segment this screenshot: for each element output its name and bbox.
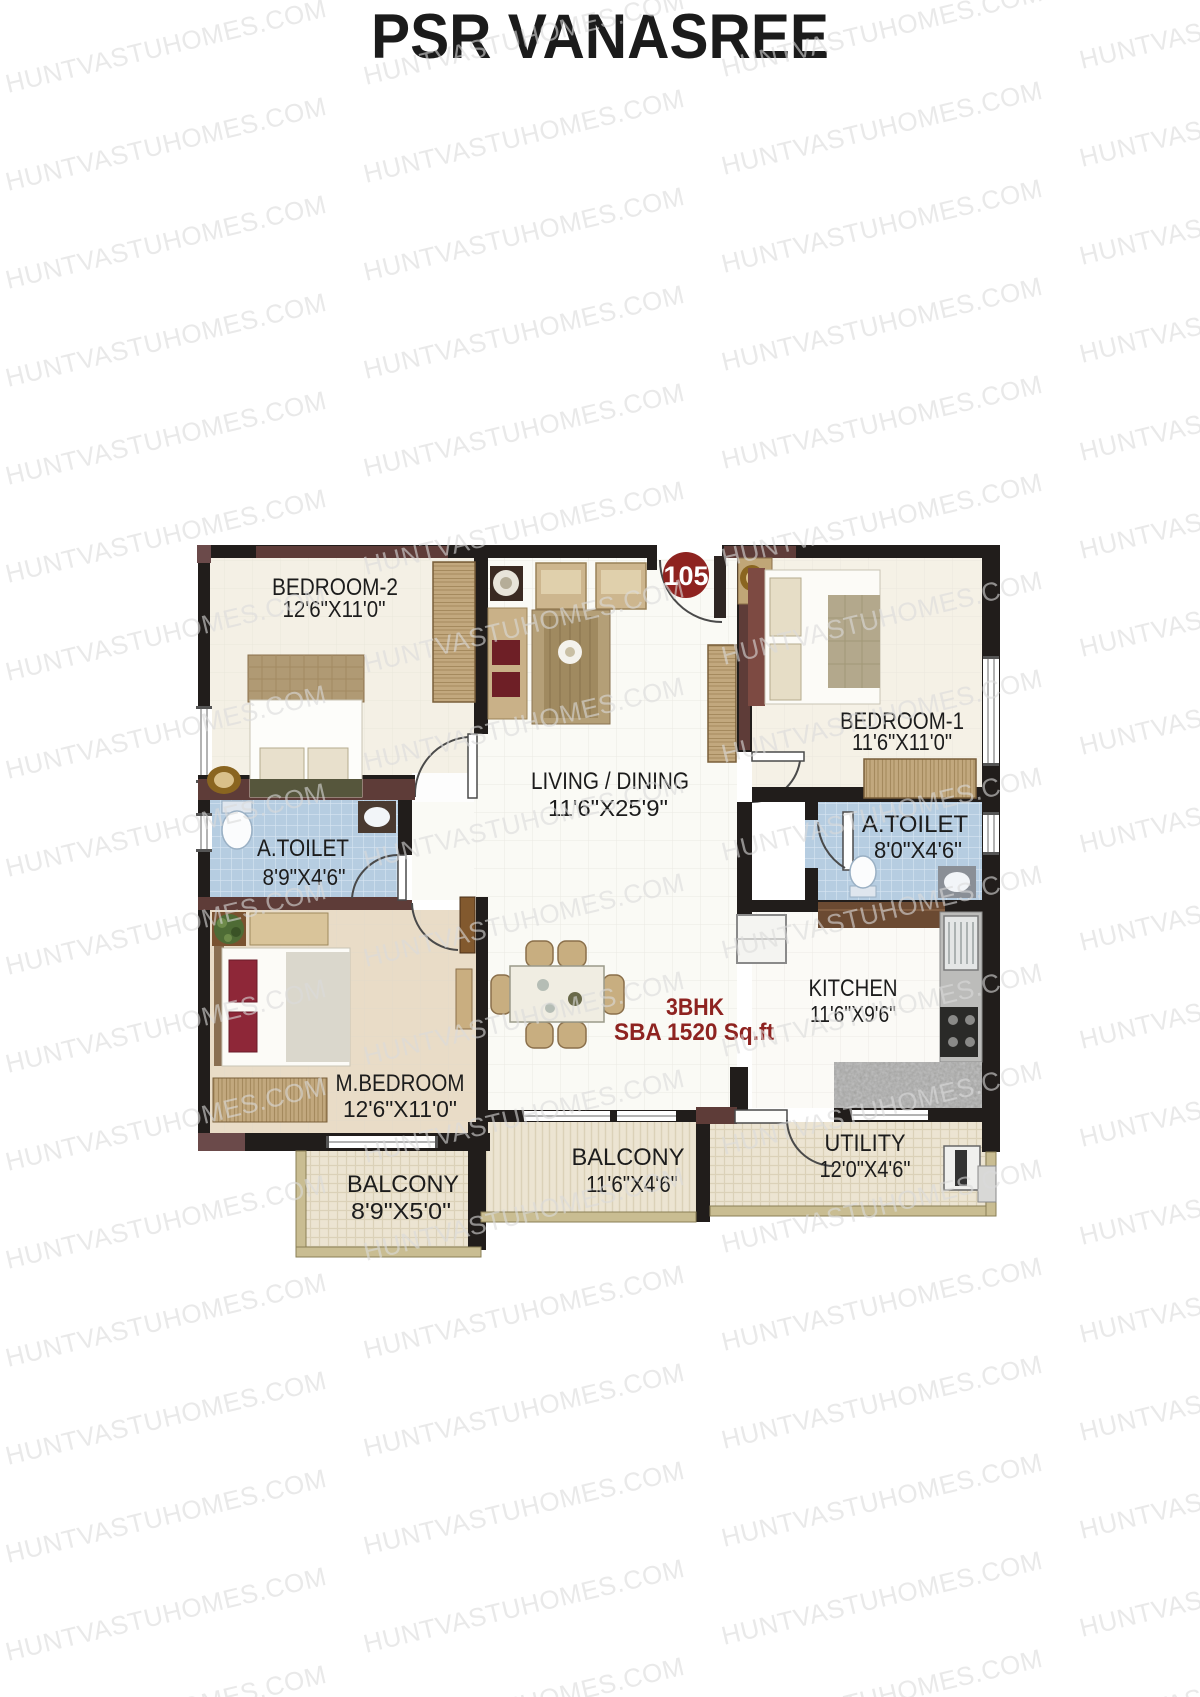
- svg-text:HUNTVASTUHOMES.COM: HUNTVASTUHOMES.COM: [1076, 0, 1200, 75]
- svg-text:HUNTVASTUHOMES.COM: HUNTVASTUHOMES.COM: [2, 287, 329, 393]
- svg-text:HUNTVASTUHOMES.COM: HUNTVASTUHOMES.COM: [2, 385, 329, 491]
- svg-text:HUNTVASTUHOMES.COM: HUNTVASTUHOMES.COM: [2, 1659, 329, 1697]
- svg-text:HUNTVASTUHOMES.COM: HUNTVASTUHOMES.COM: [1076, 1439, 1200, 1545]
- svg-text:HUNTVASTUHOMES.COM: HUNTVASTUHOMES.COM: [718, 1349, 1045, 1455]
- svg-text:HUNTVASTUHOMES.COM: HUNTVASTUHOMES.COM: [360, 1259, 687, 1365]
- svg-text:A.TOILET: A.TOILET: [257, 835, 349, 862]
- svg-text:HUNTVASTUHOMES.COM: HUNTVASTUHOMES.COM: [2, 91, 329, 197]
- svg-text:HUNTVASTUHOMES.COM: HUNTVASTUHOMES.COM: [1076, 1341, 1200, 1447]
- svg-text:HUNTVASTUHOMES.COM: HUNTVASTUHOMES.COM: [360, 1553, 687, 1659]
- svg-text:HUNTVASTUHOMES.COM: HUNTVASTUHOMES.COM: [718, 271, 1045, 377]
- svg-text:HUNTVASTUHOMES.COM: HUNTVASTUHOMES.COM: [718, 1545, 1045, 1651]
- svg-text:HUNTVASTUHOMES.COM: HUNTVASTUHOMES.COM: [2, 0, 329, 99]
- svg-text:HUNTVASTUHOMES.COM: HUNTVASTUHOMES.COM: [2, 1463, 329, 1569]
- svg-text:HUNTVASTUHOMES.COM: HUNTVASTUHOMES.COM: [1076, 753, 1200, 859]
- svg-text:8'0"X4'6": 8'0"X4'6": [874, 837, 962, 863]
- svg-text:HUNTVASTUHOMES.COM: HUNTVASTUHOMES.COM: [2, 1561, 329, 1667]
- svg-text:HUNTVASTUHOMES.COM: HUNTVASTUHOMES.COM: [718, 173, 1045, 279]
- svg-text:HUNTVASTUHOMES.COM: HUNTVASTUHOMES.COM: [360, 279, 687, 385]
- svg-text:HUNTVASTUHOMES.COM: HUNTVASTUHOMES.COM: [1076, 1635, 1200, 1697]
- svg-text:HUNTVASTUHOMES.COM: HUNTVASTUHOMES.COM: [1076, 67, 1200, 173]
- svg-text:HUNTVASTUHOMES.COM: HUNTVASTUHOMES.COM: [1076, 1145, 1200, 1251]
- svg-text:12'0"X4'6": 12'0"X4'6": [820, 1156, 911, 1182]
- svg-text:3BHK: 3BHK: [666, 994, 725, 1021]
- svg-text:HUNTVASTUHOMES.COM: HUNTVASTUHOMES.COM: [360, 1651, 687, 1697]
- svg-text:HUNTVASTUHOMES.COM: HUNTVASTUHOMES.COM: [2, 1169, 329, 1275]
- svg-text:HUNTVASTUHOMES.COM: HUNTVASTUHOMES.COM: [718, 1643, 1045, 1697]
- svg-text:HUNTVASTUHOMES.COM: HUNTVASTUHOMES.COM: [1076, 1047, 1200, 1153]
- svg-text:HUNTVASTUHOMES.COM: HUNTVASTUHOMES.COM: [718, 369, 1045, 475]
- svg-text:HUNTVASTUHOMES.COM: HUNTVASTUHOMES.COM: [718, 75, 1045, 181]
- svg-text:HUNTVASTUHOMES.COM: HUNTVASTUHOMES.COM: [1076, 361, 1200, 467]
- svg-text:HUNTVASTUHOMES.COM: HUNTVASTUHOMES.COM: [1076, 655, 1200, 761]
- svg-text:HUNTVASTUHOMES.COM: HUNTVASTUHOMES.COM: [360, 1455, 687, 1561]
- svg-text:HUNTVASTUHOMES.COM: HUNTVASTUHOMES.COM: [360, 181, 687, 287]
- svg-text:HUNTVASTUHOMES.COM: HUNTVASTUHOMES.COM: [1076, 949, 1200, 1055]
- svg-text:HUNTVASTUHOMES.COM: HUNTVASTUHOMES.COM: [1076, 1537, 1200, 1643]
- svg-text:HUNTVASTUHOMES.COM: HUNTVASTUHOMES.COM: [360, 83, 687, 189]
- svg-text:HUNTVASTUHOMES.COM: HUNTVASTUHOMES.COM: [1076, 1243, 1200, 1349]
- svg-text:HUNTVASTUHOMES.COM: HUNTVASTUHOMES.COM: [1076, 263, 1200, 369]
- svg-text:HUNTVASTUHOMES.COM: HUNTVASTUHOMES.COM: [2, 1365, 329, 1471]
- svg-text:HUNTVASTUHOMES.COM: HUNTVASTUHOMES.COM: [2, 1267, 329, 1373]
- svg-text:HUNTVASTUHOMES.COM: HUNTVASTUHOMES.COM: [1076, 851, 1200, 957]
- svg-text:HUNTVASTUHOMES.COM: HUNTVASTUHOMES.COM: [2, 189, 329, 295]
- svg-text:HUNTVASTUHOMES.COM: HUNTVASTUHOMES.COM: [1076, 557, 1200, 663]
- svg-text:12'6"X11'0": 12'6"X11'0": [343, 1096, 457, 1122]
- svg-text:HUNTVASTUHOMES.COM: HUNTVASTUHOMES.COM: [718, 1251, 1045, 1357]
- svg-text:HUNTVASTUHOMES.COM: HUNTVASTUHOMES.COM: [718, 1447, 1045, 1553]
- svg-text:BALCONY: BALCONY: [347, 1171, 459, 1198]
- svg-text:HUNTVASTUHOMES.COM: HUNTVASTUHOMES.COM: [1076, 165, 1200, 271]
- svg-text:HUNTVASTUHOMES.COM: HUNTVASTUHOMES.COM: [1076, 459, 1200, 565]
- svg-text:HUNTVASTUHOMES.COM: HUNTVASTUHOMES.COM: [360, 377, 687, 483]
- svg-text:M.BEDROOM: M.BEDROOM: [336, 1070, 465, 1097]
- svg-text:HUNTVASTUHOMES.COM: HUNTVASTUHOMES.COM: [360, 1357, 687, 1463]
